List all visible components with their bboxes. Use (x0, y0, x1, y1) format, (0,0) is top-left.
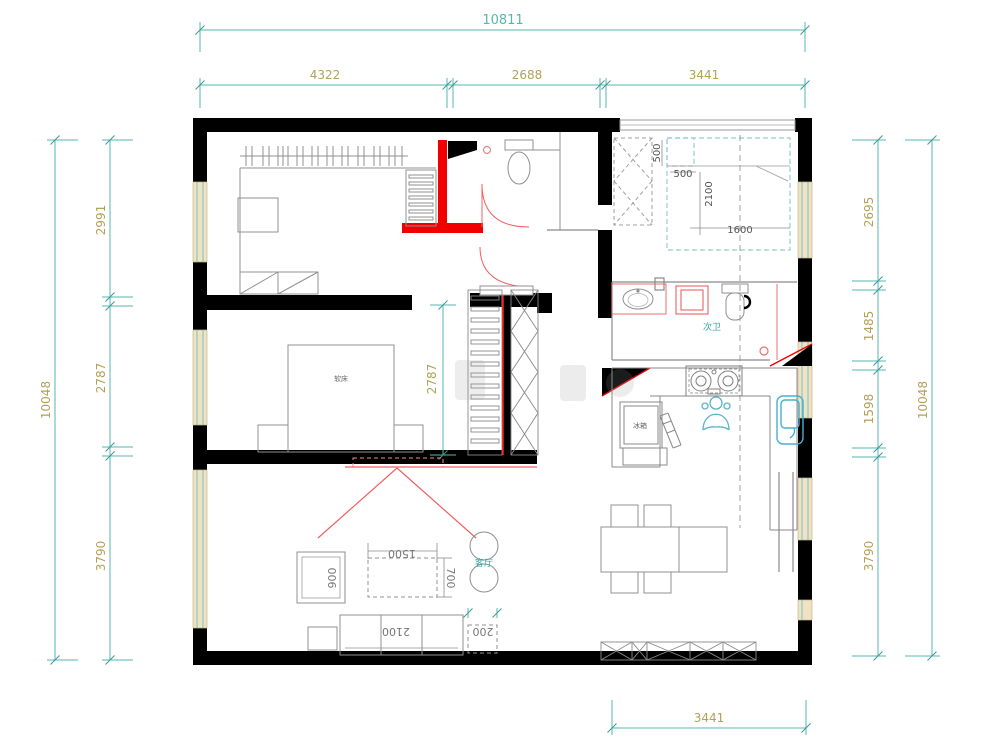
dimension-top-segments (196, 78, 810, 108)
living-room: 900 1500 700 2100 200 客厅 (297, 458, 537, 655)
coffee-table-d-label: 700 (444, 568, 457, 589)
chair (644, 505, 671, 527)
projection-line-right (397, 468, 476, 538)
chair (644, 572, 671, 593)
master-bedroom: 软床 2787 (258, 290, 538, 460)
dim-top-total-label: 10811 (482, 13, 523, 28)
side-table-left (308, 627, 337, 650)
dim-left-seg3-label: 3790 (94, 541, 108, 572)
side-table-dim-label: 200 (473, 625, 494, 638)
floor-plan-canvas: 10811 4322 2688 3441 10048 2991 2787 379… (0, 0, 1000, 750)
toilet-tank (505, 140, 533, 150)
floor-drain (760, 347, 768, 355)
bed2-width-label: 1600 (727, 225, 752, 236)
fridge-label: 冰箱 (633, 421, 647, 430)
kitchen-counters (612, 368, 797, 530)
windows-left (193, 182, 207, 628)
ironing-board (660, 413, 681, 448)
dim-left-total-label: 10048 (39, 381, 53, 419)
dim-right-seg3-label: 1598 (862, 394, 876, 425)
kitchen: 冰箱 (612, 366, 803, 530)
dim-top-seg2-label: 2688 (512, 68, 543, 82)
sofa-dim-label: 2100 (382, 625, 410, 638)
toilet-bowl (508, 152, 530, 184)
dim-top-seg1-label: 4322 (310, 68, 341, 82)
hatched-cabinet-central (511, 290, 538, 455)
dining-area (601, 505, 756, 660)
nightstand-left (258, 425, 288, 452)
armchair-dim-label: 900 (326, 568, 339, 589)
chair (611, 505, 638, 527)
chair (611, 572, 638, 593)
dim-top-seg3-label: 3441 (689, 68, 720, 82)
dining-table (601, 527, 727, 572)
dim-right-seg2-label: 1485 (862, 311, 876, 342)
toilet2-icon (722, 284, 750, 320)
interior-dim-label: 2787 (425, 364, 439, 395)
stove-icon (686, 366, 742, 396)
desk (238, 198, 278, 232)
projection-line-left (318, 468, 397, 538)
dim-left-seg1-label: 2991 (94, 205, 108, 236)
bed2-side-h-label: 500 (673, 169, 692, 180)
entry-door-arc (480, 247, 533, 287)
bathroom2-label: 次卫 (703, 321, 721, 333)
living-room-label: 客厅 (475, 557, 493, 569)
bed-label: 软床 (334, 374, 348, 383)
entry-door-leaf (480, 286, 533, 295)
dim-right-seg1-label: 2695 (862, 197, 876, 228)
nightstand-right (394, 425, 423, 452)
shower-icon (676, 286, 708, 314)
watermark (455, 360, 634, 401)
entry-bath (480, 132, 598, 295)
bathroom2: 次卫 (612, 284, 768, 355)
bath-door-arc (482, 184, 529, 227)
drain (484, 147, 491, 154)
vanity-counter (612, 284, 666, 314)
shoe-cabinets (240, 272, 318, 294)
new-walls-red (402, 140, 483, 233)
bed2-side-v-label: 500 (652, 143, 663, 162)
blanket-fold (756, 166, 788, 181)
coffee-table-w-label: 1500 (388, 547, 416, 560)
bed-icon (288, 345, 394, 452)
dim-bottom-label: 3441 (694, 711, 725, 725)
slat-shelf-top (406, 170, 436, 226)
window-top (620, 120, 795, 130)
dim-right-total-label: 10048 (916, 381, 930, 419)
bed2-dim-lines (662, 135, 790, 528)
cook-figure (702, 397, 730, 430)
floor-plan-page: 10811 4322 2688 3441 10048 2991 2787 379… (0, 0, 1000, 750)
bed2-length-label: 2100 (704, 181, 715, 206)
wardrobe-hatched (614, 138, 652, 225)
dim-left-seg2-label: 2787 (94, 363, 108, 394)
coffee-table (368, 558, 437, 597)
decor-circle-top (470, 532, 498, 560)
closet-room (238, 146, 436, 294)
side-table-ticks (464, 608, 502, 618)
dim-right-seg4-label: 3790 (862, 541, 876, 572)
